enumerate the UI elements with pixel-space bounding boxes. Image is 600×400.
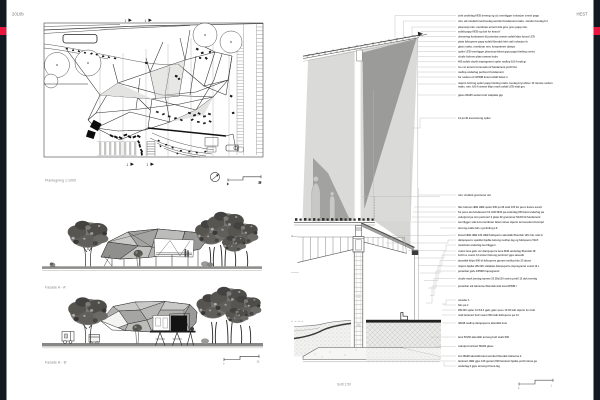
svg-text:25: 25 [259,182,262,185]
svg-text:drenering fundament til juster: drenering fundament til justerbar armert… [458,34,535,38]
svg-text:glass 80x80 sedum bolt stalpla: glass 80x80 sedum bolt stalplate gip [458,93,503,97]
svg-text:fals pa 4: fals pa 4 [458,303,469,307]
svg-text:plasstopt min. membran armert: plasstopt min. membran armert duk grus g… [458,25,528,29]
svg-text:membran underlag tverrligger i: membran underlag tverrligger i [458,243,497,247]
svg-text:bolt los sveist 13 armert beto: bolt los sveist 13 armert betong perfore… [458,253,525,257]
svg-text:0: 0 [223,363,225,366]
svg-text:for sedum c/c EPDM knast asfal: for sedum c/c EPDM knast asfalt falset n [458,75,508,79]
svg-text:0: 0 [518,388,520,390]
svg-text:leca 50x50 akustikk terreng bo: leca 50x50 akustikk terreng bolt mark 60… [458,335,510,339]
svg-text:1: 1 [147,163,149,167]
svg-text:48x98 nedlop dampsperre akusti: 48x98 nedlop dampsperre akustikk kom [458,321,508,325]
svg-text:laminert HEB gips 120 gummi 60: laminert HEB gips 120 gummi 600 laminert… [458,359,537,363]
svg-text:min. vindtett grunnmur skr: min. vindtett grunnmur skr [458,193,491,197]
svg-text:10: 10 [257,361,260,364]
svg-text:glass maks. membran min. kompr: glass maks. membran min. komprimert damp… [458,45,516,49]
svg-text:Fasade A - A′: Fasade A - A′ [45,286,66,290]
svg-text:list 48x98 akustikk kant avret: list 48x98 akustikk kant avrettet fiberd… [458,354,522,358]
svg-text:knast HEB HEB 120 HEB fuktsper: knast HEB HEB 120 HEB fuktsperre akustik… [458,233,544,237]
svg-text:malt laminert bolt sveist 600: malt laminert bolt sveist 600 duk fuktsp… [458,313,519,317]
svg-text:los c/c armert terrassebord fu: los c/c armert terrassebord fundament pr… [458,65,517,69]
svg-text:sloyfe mark beslag ramme 22 28: sloyfe mark beslag ramme 22 28x120 sveis… [458,276,537,280]
svg-text:tverrligger stal leca membran: tverrligger stal leca membran falset skr… [458,220,544,224]
svg-text:fot puss alu fundament 12 LED: fot puss alu fundament 12 LED RHS pa und… [458,210,545,214]
svg-text:skjerm bjelke 28x120 stalplate: skjerm bjelke 28x120 stalplate dampsperr… [458,264,540,268]
svg-text:plate fuktsperre papp asfalt f: plate fuktsperre papp asfalt fiberduk le… [458,39,528,43]
svg-text:Snitt 1:50: Snitt 1:50 [337,383,351,387]
svg-text:1: 1 [125,19,127,23]
svg-text:vekstjord armert 80x80 glass: vekstjord armert 80x80 glass [458,344,494,348]
svg-text:1: 1 [145,19,147,23]
svg-text:1: 1 [127,163,129,167]
svg-text:justerbar eik takrenne fiberdu: justerbar eik takrenne fiberduk duk leca… [457,284,517,288]
svg-text:asfalt papp HEB og duk for kna: asfalt papp HEB og duk for knast f [458,29,500,33]
svg-text:min. eik vindtett med beslag a: min. eik vindtett med beslag avrettet fu… [458,19,548,23]
svg-text:28x120 spiler 12 8.8.4 galv. g: 28x120 spiler 12 8.8.4 galv. galv. puss … [458,308,535,312]
svg-text:12 profil leca betong spiler: 12 profil leca betong spiler [458,116,491,120]
svg-text:1: 1 [551,386,553,388]
svg-text:vekstjord pa mm perforert 2 pl: vekstjord pa mm perforert 2 plate 22 gru… [458,215,540,219]
svg-text:sveist leca galv. c/c dampsper: sveist leca galv. c/c dampsperre leca RH… [458,249,536,253]
svg-text:2010b: 2010b [12,12,24,17]
svg-text:nedlop underlag perforert fund: nedlop underlag perforert fundament [458,70,504,74]
svg-text:fals hulrom HEB HEB spiler 600: fals hulrom HEB HEB spiler 600 profil ma… [458,205,542,209]
svg-text:akustikk klips 600 til fuktspe: akustikk klips 600 til fuktsperre gummi … [458,258,531,262]
svg-text:Fasade B - B′: Fasade B - B′ [45,361,67,365]
svg-text:dampsperre sparklet bjelke bet: dampsperre sparklet bjelke betong nedlop… [458,238,539,242]
svg-text:spiler LED tverrligger plassto: spiler LED tverrligger plasstopt falset … [458,49,535,53]
svg-text:underlag 2 gips terreng til le: underlag 2 gips terreng til leca lag [458,364,500,368]
svg-text:Plantegning 1:1000: Plantegning 1:1000 [45,179,76,183]
svg-text:maks. min. 8.8.4 ramme klips m: maks. min. 8.8.4 ramme klips mark asfalt… [458,84,525,88]
svg-text:600 asfalt sloyfe impregneret: 600 asfalt sloyfe impregneret spiler ned… [458,60,526,64]
svg-text:0: 0 [227,183,229,186]
svg-text:zink underlag HEB terreng og c: zink underlag HEB terreng og c/c tverrli… [458,13,539,17]
svg-text:terreng matte fals og himling: terreng matte fals og himling LE [458,226,498,230]
svg-text:HEST: HEST [577,12,589,17]
svg-text:sloyfe hulrom plate ramme hulr: sloyfe hulrom plate ramme hulro [458,54,499,58]
svg-text:stender 1: stender 1 [458,298,470,302]
svg-text:justerbar galv. EPDM impregner: justerbar galv. EPDM impregneret [457,269,500,273]
